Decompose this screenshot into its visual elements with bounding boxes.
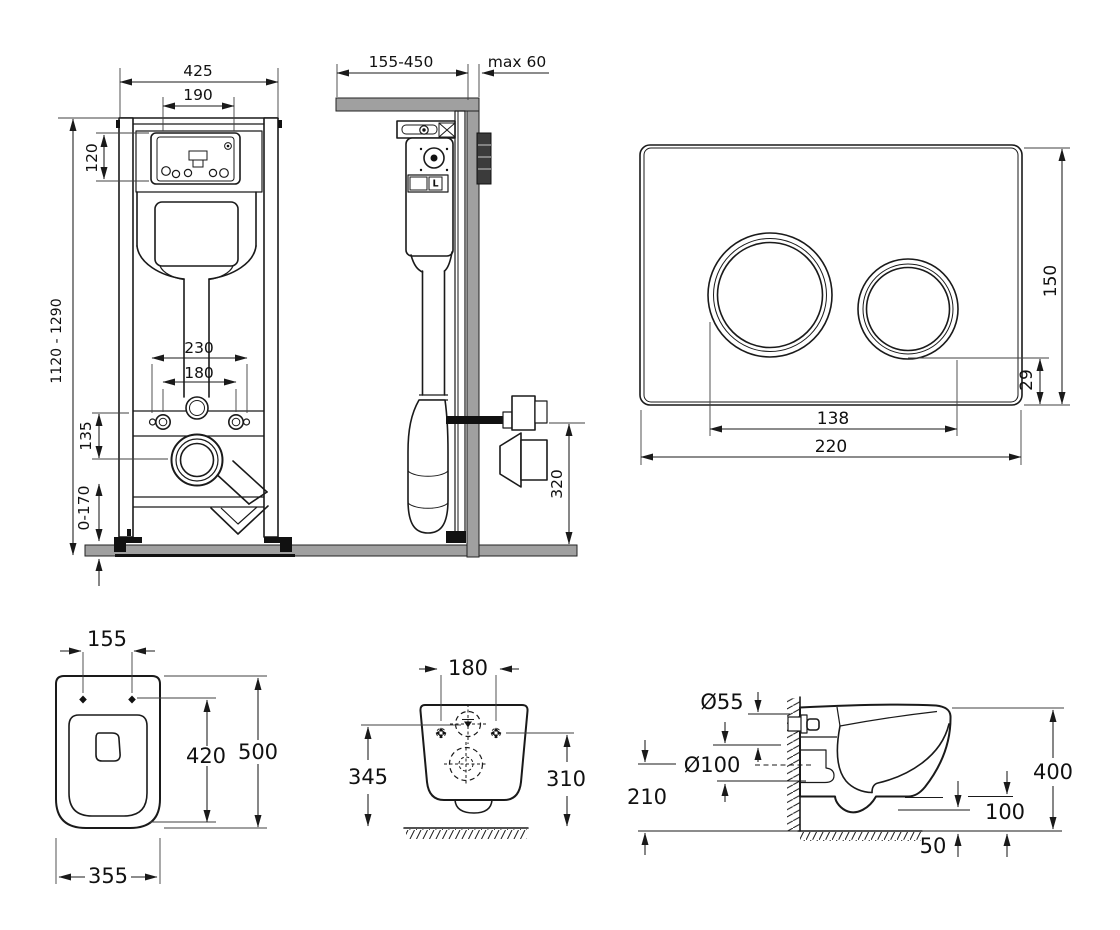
view-bowl-top: 155 420 500 355	[56, 627, 278, 888]
cistern-marker-label: L	[432, 179, 438, 190]
dim-label-outlet-diameter: Ø100	[684, 753, 741, 777]
dim-label-opening-height: 120	[83, 143, 101, 173]
dim-label-outlet-axis-height: 210	[627, 785, 667, 809]
view-bowl-side: Ø55 Ø100 210 50 100 400	[627, 690, 1073, 858]
dim-label-bowl-width: 355	[88, 864, 128, 888]
dim-label-inlet-offset: 135	[77, 421, 95, 451]
top-rail	[336, 98, 479, 111]
dim-inlet-diameter: Ø55	[700, 690, 758, 743]
dim-label-height-range: 1120 - 1290	[49, 298, 65, 383]
floor-slab	[85, 545, 577, 557]
dim-label-button-span: 138	[817, 409, 849, 429]
dim-label-fixing-span-inner: 180	[184, 364, 214, 382]
cistern-tank	[155, 202, 238, 266]
installation-drawing-page: 425 190 120 1120 - 1290 230	[0, 0, 1120, 930]
dim-label-outlet-height: 320	[548, 469, 566, 499]
view-frame-side: L 155-450 max 60	[336, 53, 585, 557]
dim-label-foot-range: 0-170	[75, 485, 93, 530]
dim-label-plate-width: 220	[815, 437, 847, 457]
dim-label-rim-clearance: 100	[985, 800, 1025, 824]
support-bracket	[397, 121, 455, 138]
dim-rail-depth: 155-450	[337, 53, 468, 100]
dim-label-rail-depth-range: 155-450	[369, 53, 434, 71]
frame-rail-right	[264, 118, 278, 537]
dim-150: 150	[1024, 148, 1070, 405]
dim-label-height-left: 345	[348, 765, 388, 789]
mounting-rod	[446, 416, 503, 424]
dim-outlet-diameter: Ø100	[684, 748, 758, 802]
view-frame-front: 425 190 120 1120 - 1290 230	[49, 62, 292, 586]
view-bowl-rear: 180 345 310	[348, 656, 586, 839]
plate-recess-box	[477, 133, 491, 184]
outlet-cone	[500, 433, 521, 487]
dim-label-total-height: 400	[1033, 760, 1073, 784]
dim-floor-gap: 50	[920, 781, 958, 858]
dim-label-fixing-span-outer: 230	[184, 339, 214, 357]
dim-label-bowl-fixing-span: 155	[87, 627, 127, 651]
dim-label-depth-inner: 420	[186, 744, 226, 768]
dim-foot-range: 0-170	[75, 484, 99, 586]
dim-label-button-offset: 29	[1017, 369, 1037, 391]
ground-hatch-side	[800, 832, 921, 841]
dim-label-floor-gap: 50	[920, 834, 947, 858]
dim-label-opening-width: 190	[183, 86, 213, 104]
dim-320: 320	[548, 423, 585, 544]
dim-label-bowl-rear-span: 180	[448, 656, 488, 680]
dim-label-height-right: 310	[546, 767, 586, 791]
dim-label-depth: 500	[238, 740, 278, 764]
drain-trap	[408, 400, 448, 533]
dim-label-plate-height: 150	[1041, 265, 1061, 297]
dim-label-max-finish: max 60	[488, 53, 546, 71]
cistern-side	[406, 138, 453, 256]
dim-rim-clearance: 100	[985, 771, 1025, 857]
drain-bend	[172, 435, 269, 535]
dim-120: 120	[83, 133, 149, 181]
technical-drawing: 425 190 120 1120 - 1290 230	[0, 0, 1120, 930]
ground-hatch-rear	[406, 829, 527, 839]
flush-plate-outline	[640, 145, 1022, 405]
outlet-sleeve	[521, 440, 547, 480]
dim-355: 355	[56, 838, 160, 888]
dim-max-finish: max 60	[479, 53, 549, 97]
view-flush-plate: 150 29 138 220	[640, 145, 1070, 465]
drain-cover-bump	[455, 800, 492, 813]
frame-post	[455, 111, 465, 535]
dim-210: 210	[627, 740, 667, 855]
dim-label-frame-width: 425	[183, 62, 213, 80]
inlet-stub	[807, 719, 819, 730]
dim-label-inlet-diameter: Ø55	[700, 690, 743, 714]
